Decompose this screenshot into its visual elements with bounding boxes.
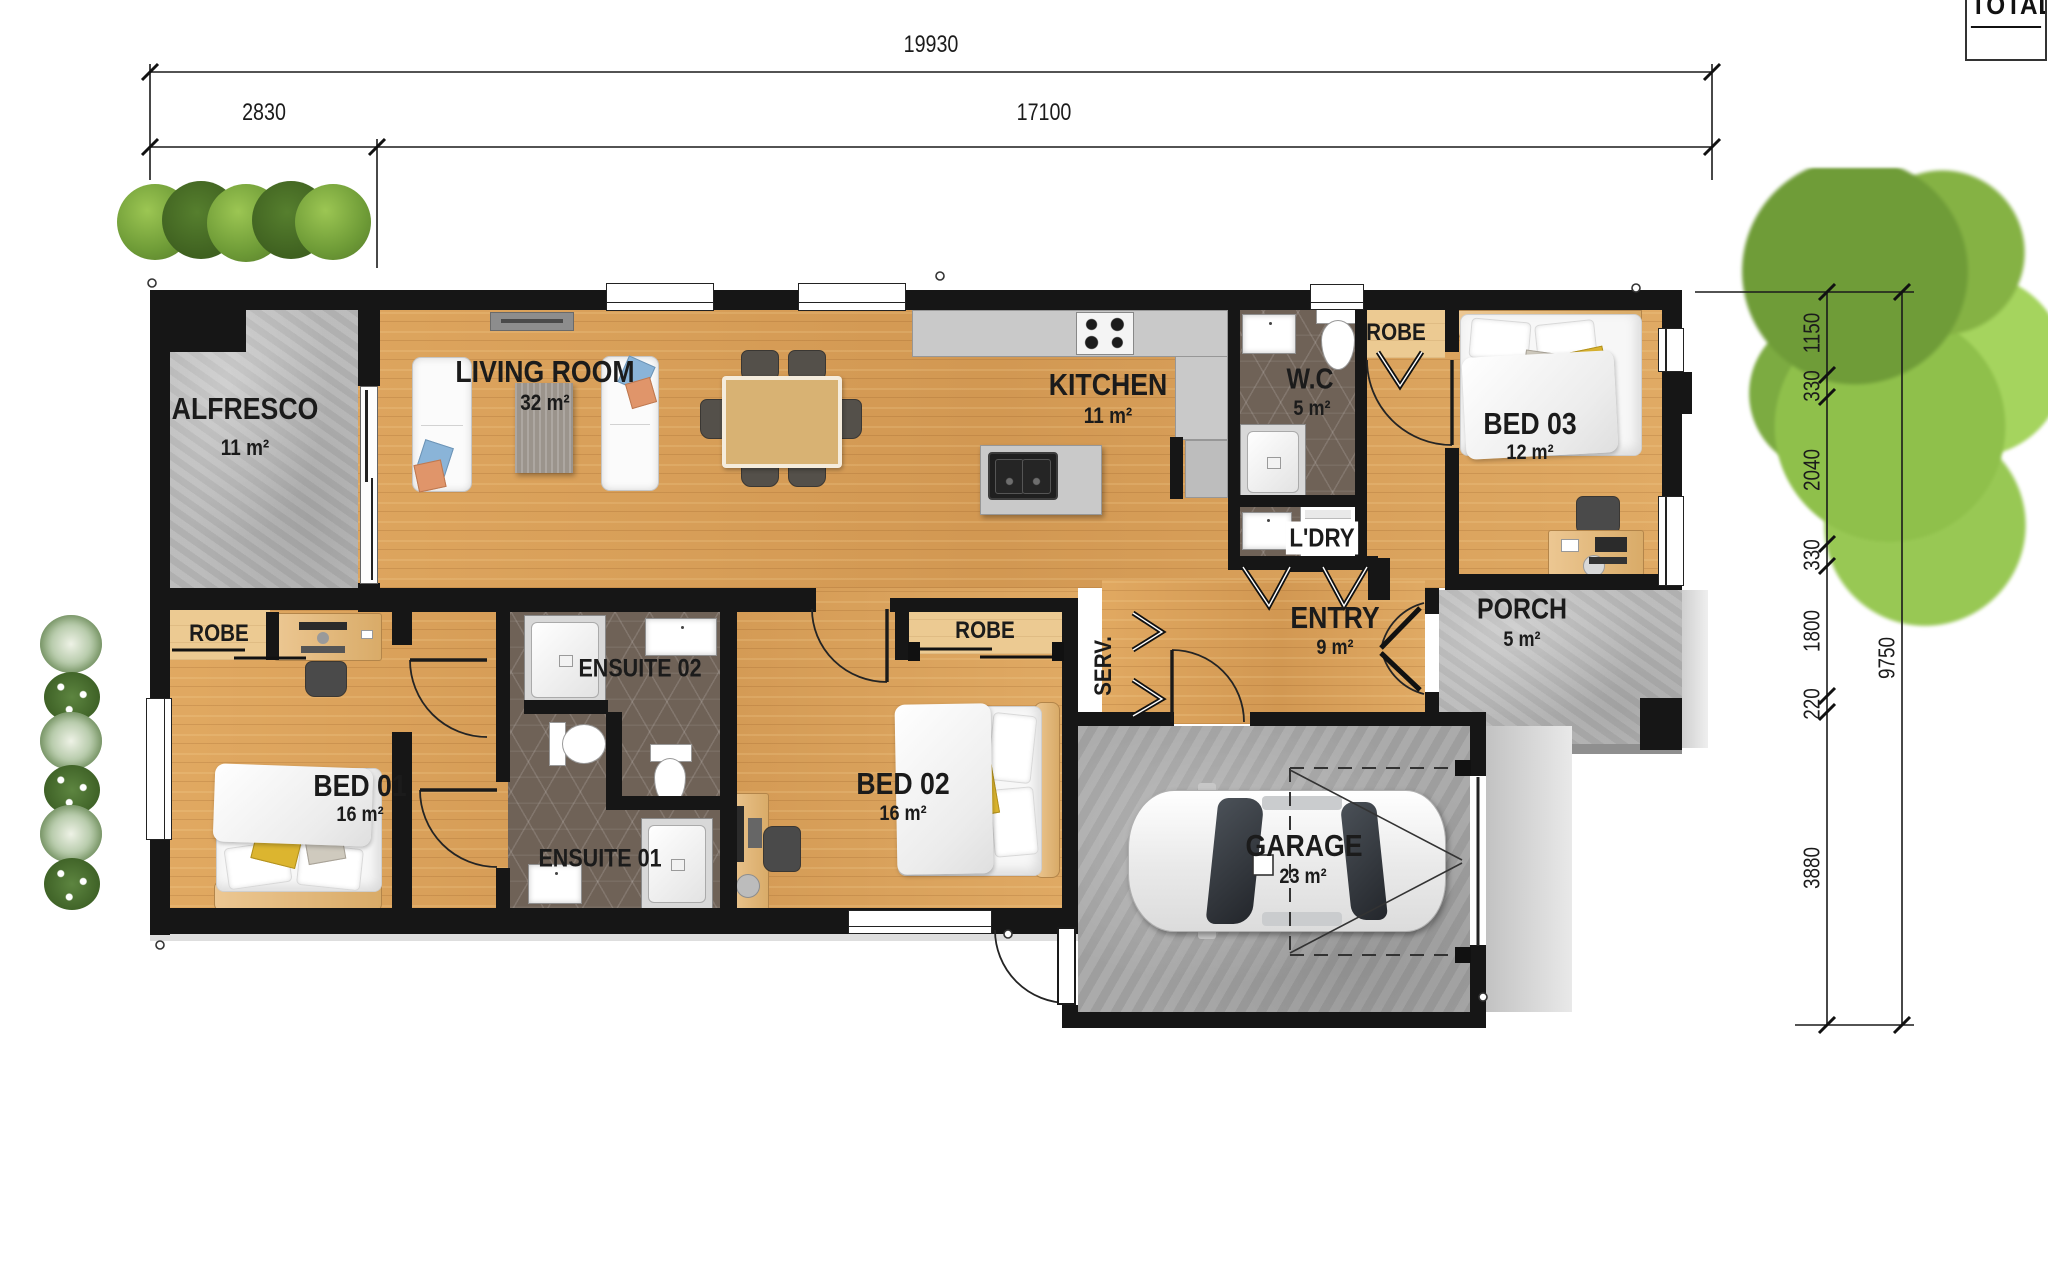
wall-segment: [358, 588, 816, 612]
room-label-living: LIVING ROOM: [455, 354, 634, 390]
footing-strip: [150, 934, 1078, 941]
wall-segment: [266, 612, 279, 660]
kitchen-tall-cabinets: [1175, 356, 1228, 440]
wall-segment: [1062, 598, 1078, 726]
wall-segment: [1170, 437, 1183, 499]
porch-outer-strip: [1682, 590, 1708, 748]
wall-segment: [895, 598, 909, 660]
room-label-entry: ENTRY: [1290, 600, 1379, 636]
dimension-330b: 330: [1799, 539, 1826, 570]
ensuite2-sink: [645, 618, 717, 656]
window-bed3-lower: [1658, 496, 1684, 586]
wall-segment: [1445, 310, 1459, 352]
room-area-bed3: 12 m²: [1506, 441, 1553, 465]
wall-segment: [1445, 448, 1459, 588]
wall-segment: [1425, 588, 1439, 614]
room-area-living: 32 m²: [520, 390, 569, 416]
bed1-desk: [274, 613, 382, 661]
dimension-2040: 2040: [1799, 449, 1826, 491]
room-label-bed1: BED 01: [313, 768, 406, 804]
dining-table: [722, 376, 842, 468]
wall-segment: [620, 796, 722, 810]
bed1-desk-chair: [305, 661, 347, 697]
room-label-bed2: BED 02: [856, 766, 949, 802]
window-living-2: [798, 283, 906, 311]
porch-post: [1640, 698, 1682, 750]
dimension-total-width: 19930: [904, 31, 959, 59]
wall-segment: [358, 310, 380, 386]
room-area-garage: 23 m²: [1279, 865, 1326, 889]
room-label-kitchen: KITCHEN: [1049, 367, 1167, 403]
wall-segment: [524, 700, 608, 714]
tree: [1722, 168, 2048, 638]
room-label-robe-bed1: ROBE: [189, 620, 249, 648]
room-label-wc: W.C: [1286, 364, 1333, 397]
wall-segment: [1290, 560, 1323, 572]
wall-segment: [496, 868, 510, 908]
ensuite1-toilet: [549, 720, 607, 766]
room-area-wc: 5 m²: [1293, 397, 1330, 421]
dimension-9750: 9750: [1874, 637, 1901, 679]
room-label-alfresco: ALFRESCO: [172, 391, 319, 427]
wall-segment: [720, 612, 737, 908]
room-area-bed1: 16 m²: [336, 803, 383, 827]
window-bed3-upper: [1658, 328, 1684, 372]
wc-sink: [1242, 314, 1296, 354]
cushion-orange: [413, 459, 446, 492]
bed2-desk-chair: [763, 826, 801, 872]
wall-segment: [150, 310, 170, 935]
wall-segment: [392, 612, 412, 645]
dimension-right-width: 17100: [1017, 99, 1072, 127]
kitchen-counter: [912, 310, 1228, 357]
wall-segment: [1662, 372, 1692, 414]
window-wc: [1310, 284, 1364, 310]
wall-segment: [150, 290, 1682, 310]
garage-apron: [1486, 726, 1572, 1012]
dimension-left-width: 2830: [242, 99, 286, 127]
room-label-robe-bed2: ROBE: [955, 617, 1015, 645]
title-block: TOTAL: [1965, 0, 2047, 61]
dimension-1150: 1150: [1799, 313, 1826, 354]
dimension-330a: 330: [1799, 370, 1826, 401]
sliding-door-alfresco: [360, 386, 378, 584]
wall-segment: [1368, 558, 1390, 600]
wall-segment: [1228, 495, 1367, 507]
room-area-kitchen: 11 m²: [1084, 403, 1132, 429]
wall-segment: [1445, 574, 1682, 590]
wall-segment: [1470, 712, 1486, 776]
stove: [1076, 312, 1134, 355]
tv-unit: [490, 312, 574, 331]
room-label-ensuite2: ENSUITE 02: [578, 655, 701, 684]
room-label-robe-bed3: ROBE: [1366, 319, 1426, 347]
room-area-entry: 9 m²: [1316, 636, 1353, 660]
wall-segment: [150, 588, 358, 610]
room-label-bed3: BED 03: [1483, 406, 1576, 442]
window-living-1: [606, 283, 714, 311]
island-sink: [988, 452, 1058, 500]
wall-segment: [890, 598, 1070, 612]
room-area-alfresco: 11 m²: [221, 435, 269, 461]
floor-plan: TOTAL 19930 2830 17100 1150 330 2040 330…: [0, 0, 2048, 1273]
room-label-ldry: L'DRY: [1286, 522, 1358, 555]
dimension-220: 220: [1799, 688, 1826, 719]
wc-shower: [1240, 424, 1306, 500]
room-area-porch: 5 m²: [1503, 628, 1540, 652]
room-label-serv: SERV.: [1090, 636, 1118, 696]
room-area-bed2: 16 m²: [879, 802, 926, 826]
wall-segment: [1062, 712, 1078, 932]
wall-segment: [1250, 712, 1486, 726]
wc-toilet: [1314, 304, 1360, 372]
window-bed2: [848, 910, 992, 934]
title-block-label: TOTAL: [1971, 0, 2041, 28]
wall-segment: [1062, 712, 1174, 726]
wall-segment: [496, 612, 510, 782]
laundry-sink: [1242, 512, 1292, 550]
kitchen-pantry: [1185, 440, 1228, 498]
bed3-desk: [1548, 530, 1644, 576]
window-bed1: [146, 698, 172, 840]
dimension-3880: 3880: [1799, 847, 1826, 889]
room-label-ensuite1: ENSUITE 01: [538, 845, 661, 874]
dimension-1800: 1800: [1799, 610, 1826, 652]
wall-segment: [392, 732, 412, 908]
room-label-porch: PORCH: [1477, 594, 1567, 627]
wall-segment: [1228, 310, 1240, 562]
wall-segment: [1062, 1012, 1486, 1028]
room-label-garage: GARAGE: [1245, 828, 1362, 864]
